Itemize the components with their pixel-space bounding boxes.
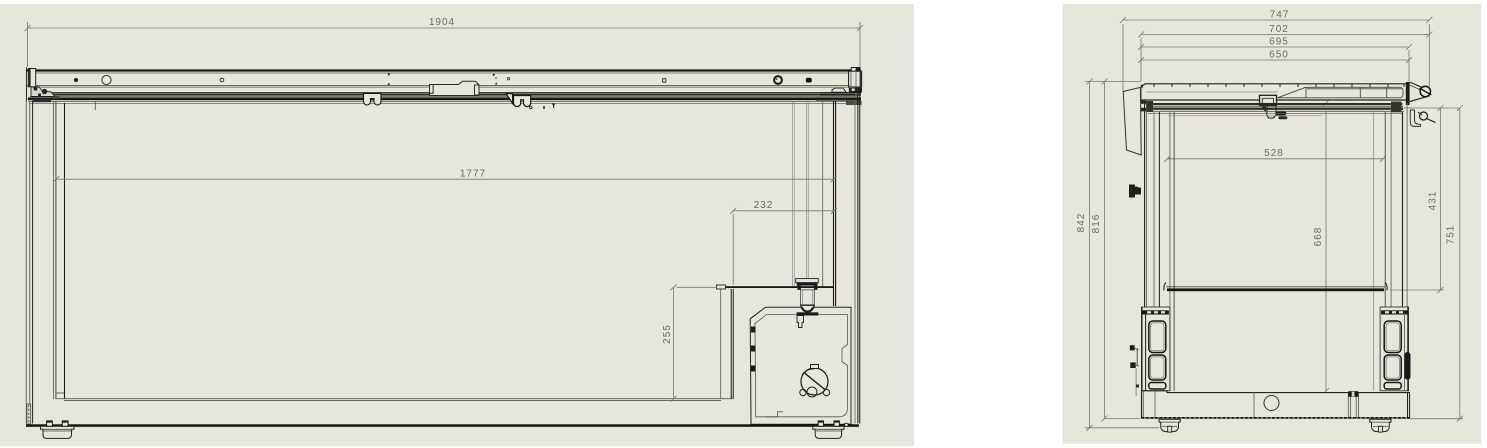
svg-text:842: 842 (1076, 213, 1087, 233)
svg-text:232: 232 (754, 200, 774, 211)
svg-text:695: 695 (1269, 37, 1289, 48)
svg-text:1904: 1904 (429, 17, 455, 28)
svg-text:816: 816 (1091, 214, 1102, 234)
svg-text:751: 751 (1446, 225, 1457, 245)
svg-text:1777: 1777 (460, 169, 486, 180)
svg-text:255: 255 (662, 324, 673, 344)
svg-text:668: 668 (1313, 227, 1324, 247)
svg-text:431: 431 (1428, 191, 1439, 211)
svg-text:650: 650 (1269, 50, 1289, 61)
svg-text:702: 702 (1269, 24, 1289, 35)
svg-text:747: 747 (1270, 10, 1290, 21)
svg-text:528: 528 (1264, 148, 1284, 159)
